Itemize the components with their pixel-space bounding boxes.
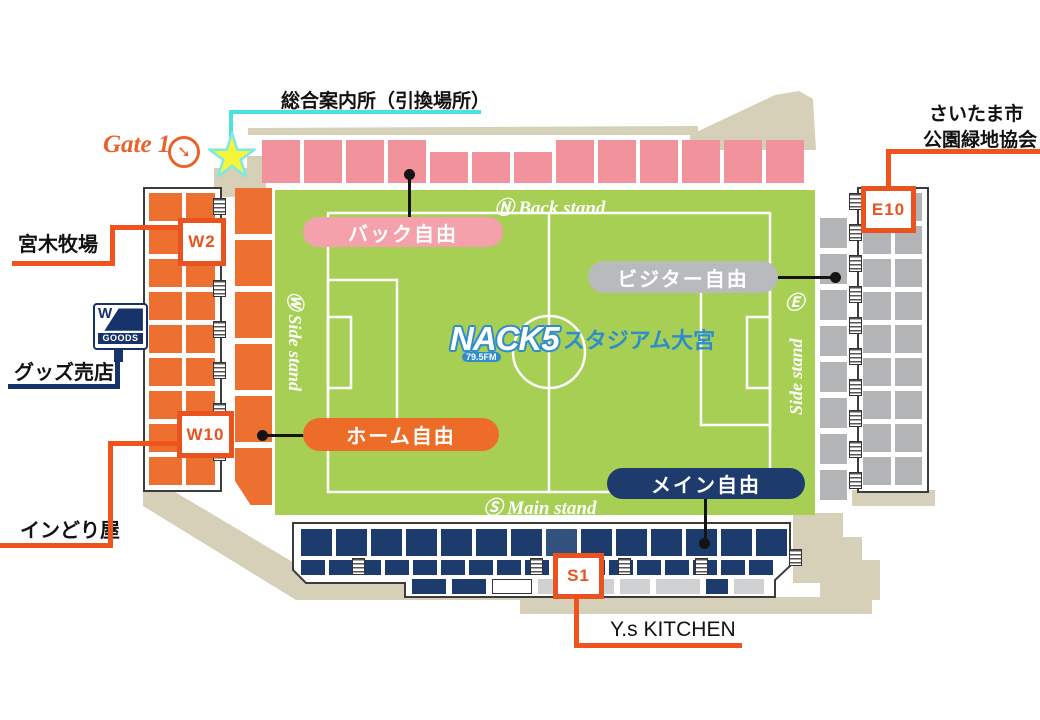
main-stand-block <box>371 529 402 556</box>
indoriya-line-top <box>108 441 178 446</box>
stairs-icon <box>849 317 862 334</box>
main-stand-block <box>749 560 773 575</box>
west-stand-front-block <box>235 188 272 234</box>
back-stand-block <box>472 152 510 183</box>
east-stand-front-block <box>820 290 847 320</box>
stairs-icon <box>213 198 226 215</box>
indoriya-line-v <box>108 441 113 548</box>
main-stand-block <box>637 560 661 575</box>
saitama-label-line2: 公園緑地協会 <box>923 125 1037 152</box>
back-stand-block <box>598 140 636 183</box>
visitor-free-badge: ビジター自由 <box>588 261 778 293</box>
stairs-icon <box>849 255 862 272</box>
saitama-line-h <box>886 149 1040 154</box>
stairs-icon <box>849 472 862 489</box>
back-stand-block <box>304 140 342 183</box>
seat-blocks-layer <box>0 0 1040 720</box>
visitor-free-connector-line <box>776 276 836 279</box>
main-stand-block <box>620 579 650 594</box>
west-stand-front-block <box>235 292 272 338</box>
main-stand-block <box>756 529 787 556</box>
main-stand-block <box>581 529 612 556</box>
stairs-icon <box>352 558 365 575</box>
back-free-connector-line <box>408 178 411 218</box>
main-stand-block <box>651 529 682 556</box>
main-stand-block <box>476 529 507 556</box>
east-stand-front-block <box>820 326 847 356</box>
east-stand-front-block <box>820 434 847 464</box>
main-stand-block <box>336 529 367 556</box>
back-stand-block <box>724 140 762 183</box>
main-free-connector-dot <box>699 538 710 549</box>
gate-box-s1: S1 <box>553 553 604 599</box>
east-stand-block <box>863 358 891 386</box>
gate-box-w10: W10 <box>177 411 234 458</box>
main-stand-block <box>497 560 521 575</box>
main-stand-block <box>734 579 764 594</box>
main-stand-block <box>706 579 728 594</box>
east-stand-front-block <box>820 398 847 428</box>
saitama-label-line1: さいたま市 <box>929 99 1023 126</box>
east-stand-block <box>863 292 891 320</box>
main-stand-block <box>301 529 332 556</box>
stairs-icon <box>849 379 862 396</box>
back-stand-block <box>766 140 804 183</box>
gate-box-w2: W2 <box>178 218 226 266</box>
goods-line-v <box>115 352 120 388</box>
main-stand-block <box>441 560 465 575</box>
indoriya-label: インどり屋 <box>20 514 120 543</box>
back-stand-block <box>430 152 468 183</box>
west-stand-front-block <box>235 448 272 505</box>
ys-kitchen-line-under <box>574 643 742 648</box>
east-stand-block <box>895 292 922 320</box>
main-stand-block <box>546 529 577 556</box>
stairs-icon <box>849 410 862 427</box>
main-stand-block <box>656 579 700 594</box>
back-stand-block <box>262 140 300 183</box>
back-free-badge: バック自由 <box>303 217 503 247</box>
east-stand-front-block <box>820 470 847 500</box>
info-office-label: 総合案内所（引換場所） <box>281 86 490 113</box>
miyaki-line-v <box>110 225 115 266</box>
west-stand-block <box>186 325 215 353</box>
east-stand-block <box>895 424 922 452</box>
main-stand-block <box>511 529 542 556</box>
back-stand-block <box>514 152 552 183</box>
east-stand-block <box>895 259 922 287</box>
west-stand-block <box>149 325 182 353</box>
gate-box-e10: E10 <box>861 186 916 233</box>
east-stand-block <box>863 457 891 485</box>
stairs-icon <box>618 558 631 575</box>
west-stand-block <box>186 292 215 320</box>
stairs-icon <box>530 558 543 575</box>
east-stand-block <box>863 391 891 419</box>
east-stand-block <box>895 358 922 386</box>
east-stand-front-block <box>820 362 847 392</box>
main-stand-block <box>469 560 493 575</box>
back-stand-block <box>640 140 678 183</box>
west-stand-block <box>186 193 215 221</box>
home-free-connector-dot <box>257 430 268 441</box>
west-stand-front-block <box>235 240 272 286</box>
main-stand-block <box>406 529 437 556</box>
west-stand-block <box>149 358 182 386</box>
main-stand-block <box>329 560 353 575</box>
ys-kitchen-line-v <box>574 596 579 648</box>
home-free-badge: ホーム自由 <box>303 418 499 451</box>
goods-shop-label: グッズ売店 <box>14 356 114 385</box>
west-stand-block <box>186 358 215 386</box>
main-free-badge: メイン自由 <box>607 468 805 499</box>
main-stand-block <box>721 529 752 556</box>
stairs-icon <box>849 286 862 303</box>
back-stand-block <box>682 140 720 183</box>
east-stand-block <box>895 391 922 419</box>
indoriya-line-under <box>0 543 113 548</box>
back-stand-block <box>556 140 594 183</box>
east-stand-block <box>863 325 891 353</box>
west-stand-block <box>149 193 182 221</box>
main-stand-block <box>452 579 486 594</box>
main-stand-block <box>492 579 532 594</box>
visitor-free-connector-dot <box>830 272 841 283</box>
main-stand-block <box>412 579 446 594</box>
east-stand-block <box>863 259 891 287</box>
goods-icon-w: W <box>98 305 112 322</box>
ys-kitchen-label: Y.s KITCHEN <box>610 618 736 642</box>
miyaki-line-under <box>12 261 115 266</box>
stairs-icon <box>213 280 226 297</box>
stairs-icon <box>213 321 226 338</box>
east-stand-block <box>895 457 922 485</box>
saitama-line-v <box>886 149 891 187</box>
west-stand-block <box>149 457 182 485</box>
east-stand-front-block <box>820 218 847 248</box>
main-free-connector-line <box>704 497 707 543</box>
west-stand-block <box>186 457 215 485</box>
main-stand-block <box>385 560 409 575</box>
stairs-icon <box>695 558 708 575</box>
meeting-star-icon <box>206 131 258 183</box>
main-stand-block <box>616 529 647 556</box>
main-stand-block <box>441 529 472 556</box>
west-stand-front-block <box>235 344 272 390</box>
main-stand-block <box>413 560 437 575</box>
gate1-label: Gate 1 <box>103 131 170 159</box>
miyaki-label: 宮木牧場 <box>18 228 98 257</box>
east-stand-block <box>895 325 922 353</box>
goods-icon-band: GOODS <box>98 333 143 344</box>
home-free-connector-line <box>265 434 305 437</box>
main-stand-block <box>301 560 325 575</box>
stairs-icon <box>789 549 802 566</box>
east-stand-block <box>863 424 891 452</box>
stairs-icon <box>213 362 226 379</box>
miyaki-line-top <box>110 225 178 230</box>
stairs-icon <box>849 348 862 365</box>
main-stand-block <box>665 560 689 575</box>
west-stand-block <box>149 292 182 320</box>
stadium-map: Ⓝ Back stand Ⓢ Main stand Ⓦ Side stand Ⓔ… <box>0 0 1040 720</box>
stairs-icon <box>849 441 862 458</box>
goods-shop-icon: W GOODS <box>93 303 148 350</box>
gate1-arrow-icon: ➘ <box>168 136 200 168</box>
main-stand-block <box>721 560 745 575</box>
back-stand-block <box>346 140 384 183</box>
